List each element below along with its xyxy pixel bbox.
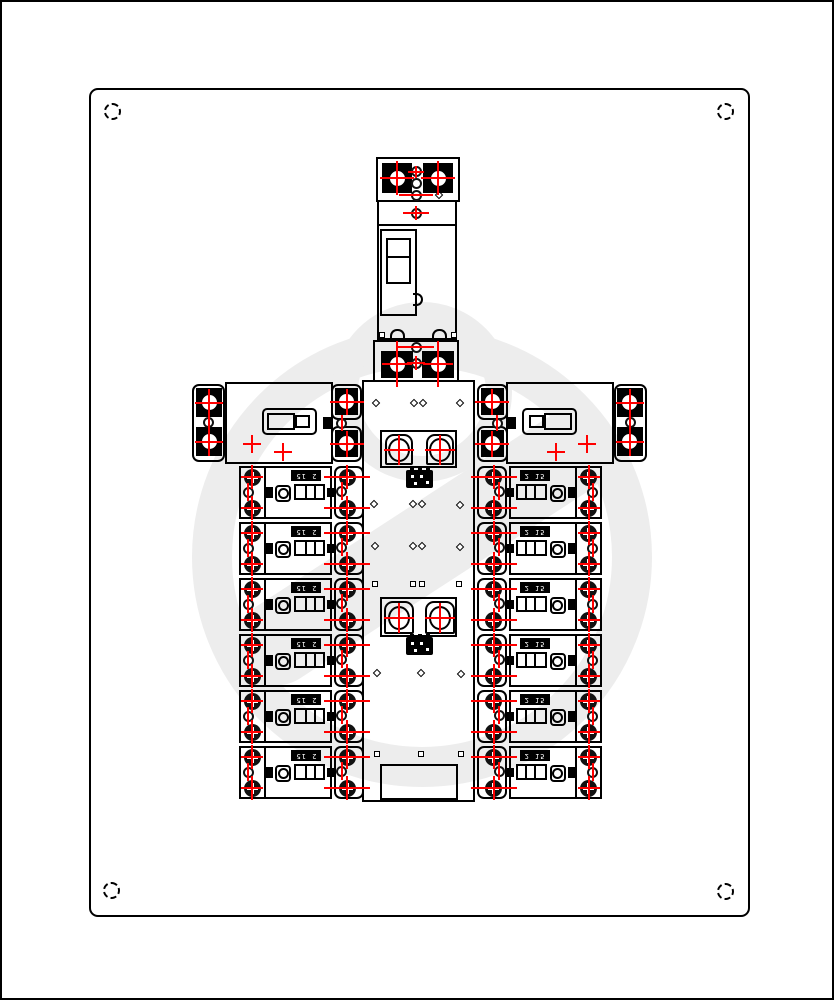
breaker-rating-label: 2 15: [291, 750, 321, 761]
panel-hole: [458, 751, 464, 757]
stab-connector: [507, 600, 514, 609]
branch-breaker-row: 2 15: [477, 522, 602, 575]
bump-slot: [379, 332, 385, 338]
body-divider: [378, 224, 456, 226]
breaker-rating-label: 2 15: [520, 582, 550, 593]
sub-feed-breaker: [192, 382, 362, 464]
stab-connector: [264, 487, 273, 498]
toggle-handle: [267, 413, 295, 430]
mounting-hole: [104, 103, 121, 120]
screw: [411, 178, 422, 189]
branch-breaker-row: 2 15: [477, 466, 602, 519]
branch-breaker-row: 2 15: [477, 690, 602, 743]
breaker-toggle: [516, 708, 547, 724]
breaker-rating-label: 2 15: [291, 470, 321, 481]
breaker-toggle: [516, 652, 547, 668]
stab-connector: [327, 488, 334, 497]
breaker-rating-label-text: 2 15: [296, 528, 317, 535]
breaker-rating-label-text: 2 15: [296, 752, 317, 759]
breaker-toggle: [294, 596, 325, 612]
breaker-rating-label-text: 2 15: [296, 696, 317, 703]
stab-connector: [264, 767, 273, 778]
breaker-toggle: [516, 540, 547, 556]
panel-cutout: [380, 764, 458, 800]
panel-hole: [419, 581, 425, 587]
breaker-rating-label-text: 2 15: [296, 472, 317, 479]
breaker-rating-label-text: 2 15: [525, 752, 546, 759]
breaker-toggle: [294, 652, 325, 668]
breaker-bump: [432, 329, 447, 340]
stab-connector: [507, 488, 514, 497]
stab-connector: [323, 417, 332, 429]
stab-connector: [568, 543, 577, 554]
breaker-rating-label: 2 15: [291, 638, 321, 649]
stab-connector: [327, 768, 334, 777]
breaker-toggle: [294, 540, 325, 556]
breaker-rating-label: 2 15: [520, 470, 550, 481]
stab-connector: [264, 655, 273, 666]
breaker-toggle: [294, 708, 325, 724]
panel-layout-drawing: 2 15 2 15: [0, 0, 834, 1000]
mounting-hole: [717, 103, 734, 120]
bus-terminal-block: [406, 637, 433, 655]
breaker-actuator: [275, 653, 291, 670]
breaker-actuator: [275, 709, 291, 726]
toggle-cell: [295, 415, 310, 428]
breaker-rating-label-text: 2 15: [296, 584, 317, 591]
breaker-actuator: [550, 653, 566, 670]
stab-connector: [264, 543, 273, 554]
branch-breaker-row: 2 15: [239, 746, 364, 799]
stab-connector: [507, 417, 516, 429]
stab-connector: [507, 656, 514, 665]
breaker-rating-label-text: 2 15: [525, 696, 546, 703]
panel-hole: [372, 581, 378, 587]
breaker-rating-label-text: 2 15: [525, 528, 546, 535]
toggle-cell: [529, 415, 544, 428]
breaker-actuator: [275, 765, 291, 782]
breaker-rating-label-text: 2 15: [525, 640, 546, 647]
branch-breaker-row: 2 15: [239, 578, 364, 631]
branch-breaker-row: 2 15: [477, 578, 602, 631]
stab-connector: [568, 655, 577, 666]
breaker-toggle: [294, 764, 325, 780]
stab-connector: [568, 487, 577, 498]
breaker-toggle: [516, 596, 547, 612]
branch-breaker-row: 2 15: [477, 634, 602, 687]
breaker-actuator: [550, 541, 566, 558]
stab-connector: [568, 767, 577, 778]
breaker-rating-label: 2 15: [291, 694, 321, 705]
bus-terminal-block: [406, 470, 433, 488]
branch-breaker-row: 2 15: [239, 690, 364, 743]
stab-connector: [507, 768, 514, 777]
panel-hole: [410, 581, 416, 587]
breaker-actuator: [275, 485, 291, 502]
breaker-actuator: [275, 541, 291, 558]
stab-connector: [327, 600, 334, 609]
breaker-actuator: [550, 765, 566, 782]
breaker-rating-label-text: 2 15: [525, 584, 546, 591]
stab-connector: [507, 712, 514, 721]
branch-breaker-row: 2 15: [239, 634, 364, 687]
panel-hole: [374, 751, 380, 757]
stab-connector: [327, 544, 334, 553]
breaker-actuator: [550, 597, 566, 614]
breaker-rating-label-text: 2 15: [296, 640, 317, 647]
breaker-actuator: [275, 597, 291, 614]
breaker-toggle: [294, 484, 325, 500]
breaker-rating-label: 2 15: [520, 694, 550, 705]
breaker-rating-label: 2 15: [291, 526, 321, 537]
toggle-handle: [544, 413, 572, 430]
stab-connector: [568, 711, 577, 722]
stab-connector: [568, 599, 577, 610]
stab-connector: [264, 711, 273, 722]
bump-slot: [451, 332, 457, 338]
breaker-toggle: [516, 484, 547, 500]
breaker-actuator: [550, 709, 566, 726]
branch-breaker-row: 2 15: [477, 746, 602, 799]
breaker-toggle: [516, 764, 547, 780]
panel-hole: [418, 751, 424, 757]
breaker-rating-label: 2 15: [291, 582, 321, 593]
stab-connector: [264, 599, 273, 610]
mounting-hole: [717, 883, 734, 900]
branch-breaker-row: 2 15: [239, 466, 364, 519]
stab-connector: [327, 712, 334, 721]
breaker-rating-label-text: 2 15: [525, 472, 546, 479]
breaker-actuator: [550, 485, 566, 502]
breaker-rating-label: 2 15: [520, 750, 550, 761]
mounting-hole: [103, 882, 120, 899]
stab-connector: [507, 544, 514, 553]
sub-feed-breaker: [477, 382, 647, 464]
panel-hole: [456, 581, 462, 587]
main-toggle-window: [386, 238, 411, 284]
breaker-bump: [390, 329, 405, 340]
breaker-rating-label: 2 15: [520, 526, 550, 537]
stab-connector: [327, 656, 334, 665]
toggle-divider: [387, 256, 410, 258]
breaker-rating-label: 2 15: [520, 638, 550, 649]
branch-breaker-row: 2 15: [239, 522, 364, 575]
